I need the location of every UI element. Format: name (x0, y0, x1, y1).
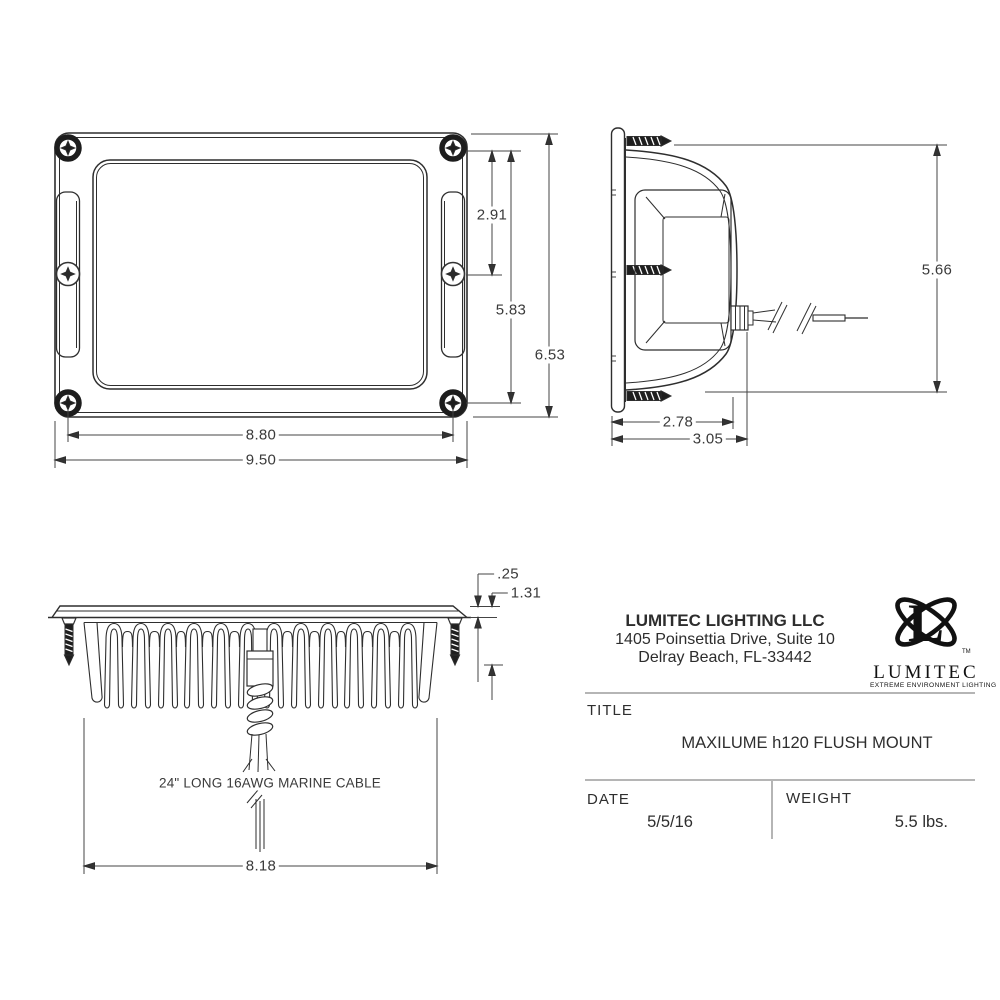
dim-label-3-05: 3.05 (690, 431, 726, 448)
logo-letter: L (908, 593, 944, 653)
cable-note-label: 24" LONG 16AWG MARINE CABLE (156, 776, 384, 791)
lumitec-logo-mark: L TM (880, 586, 972, 658)
dim-label-2-78: 2.78 (660, 414, 696, 431)
dim-label-8-18: 8.18 (243, 858, 279, 875)
address-line-1: 1405 Poinsettia Drive, Suite 10 (585, 631, 865, 649)
date-value: 5/5/16 (610, 813, 730, 832)
dim-label-0-25: .25 (494, 566, 522, 583)
logo-tagline: EXTREME ENVIRONMENT LIGHTING (870, 682, 982, 690)
address-line-2: Delray Beach, FL-33442 (585, 649, 865, 667)
date-label: DATE (587, 791, 630, 808)
title-label: TITLE (587, 702, 633, 719)
weight-value: 5.5 lbs. (820, 813, 948, 832)
lumitec-logo: L TM LUMITEC EXTREME ENVIRONMENT LIGHTIN… (870, 586, 982, 690)
dim-label-5-83: 5.83 (493, 302, 529, 319)
dim-label-5-66: 5.66 (919, 262, 955, 279)
dim-label-6-53: 6.53 (532, 347, 568, 364)
title-value: MAXILUME h120 FLUSH MOUNT (657, 734, 957, 753)
company-name: LUMITEC LIGHTING LLC (585, 611, 865, 631)
titleblock-divider-top (585, 692, 975, 694)
dim-label-2-91: 2.91 (474, 207, 510, 224)
side-view (612, 128, 948, 446)
company-block: LUMITEC LIGHTING LLC 1405 Poinsettia Dri… (585, 611, 865, 667)
dim-label-8-80: 8.80 (243, 427, 279, 444)
titleblock-divider-vertical (771, 779, 773, 839)
dim-label-9-50: 9.50 (243, 452, 279, 469)
logo-wordmark: LUMITEC (870, 663, 982, 682)
dim-label-1-31: 1.31 (508, 585, 544, 602)
front-view (55, 133, 558, 468)
titleblock-divider-mid (585, 779, 975, 781)
drawing-sheet: 2.91 5.83 6.53 8.80 9.50 5.66 2.78 3.05 … (0, 0, 1000, 1000)
weight-label: WEIGHT (786, 790, 852, 807)
technical-drawing (0, 0, 1000, 1000)
bottom-view (48, 574, 511, 874)
logo-tm: TM (962, 649, 971, 655)
